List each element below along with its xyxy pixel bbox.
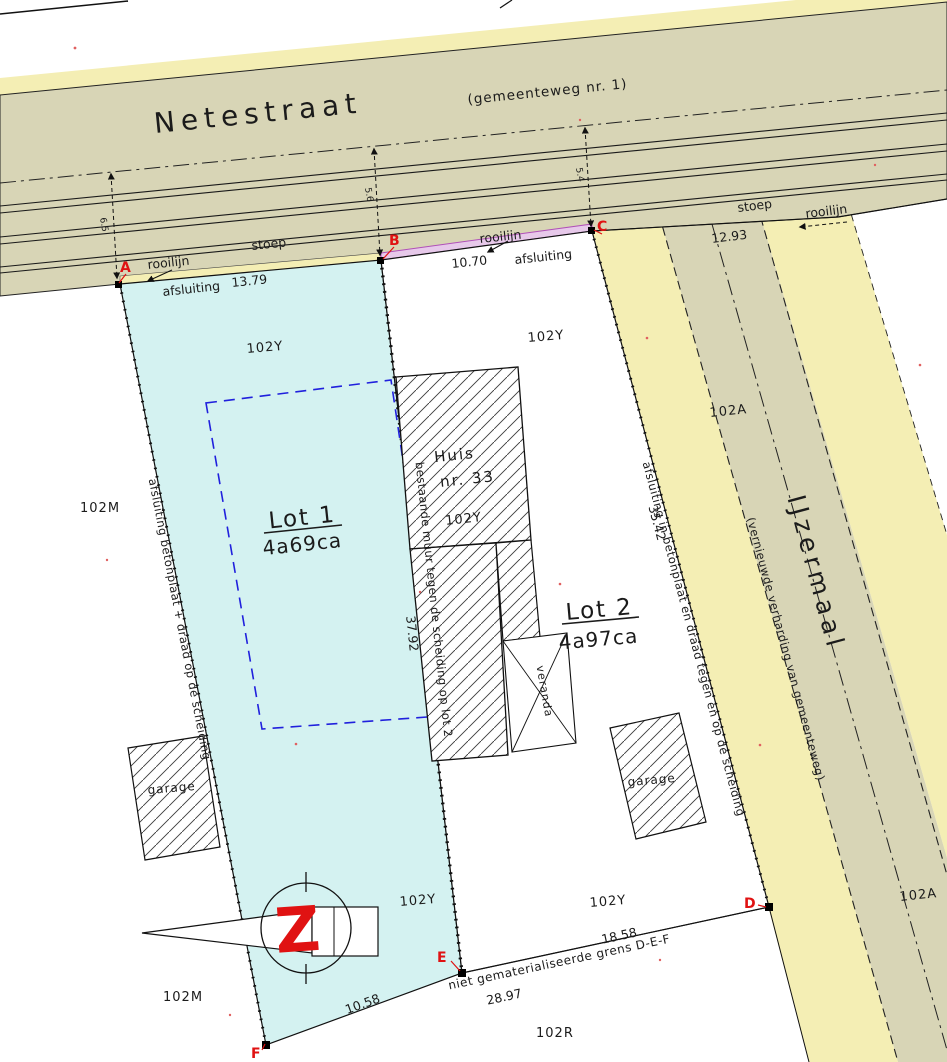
point-b-marker <box>377 257 384 264</box>
point-f-label: F <box>251 1046 261 1062</box>
parcel-102y-lot1-top: 102Y <box>246 339 284 357</box>
point-d-label: D <box>744 896 756 912</box>
cadastral-plan: A B C D E F Z Netestraat (gemeenteweg nr… <box>0 0 947 1062</box>
north-letter: Z <box>273 892 323 968</box>
point-b-label: B <box>389 233 400 249</box>
parcel-102y-lot2-top: 102Y <box>527 328 565 346</box>
north-arrow-tail <box>312 907 378 956</box>
parcel-102y-lot2-bottom: 102Y <box>589 893 627 911</box>
parcel-102y-lot1-bottom: 102Y <box>399 892 437 910</box>
parcel-102r: 102R <box>536 1026 574 1041</box>
dim-ed: 28.97 <box>485 986 523 1008</box>
point-d-marker <box>765 903 773 911</box>
top-corner-line <box>0 1 128 14</box>
point-a-label: A <box>120 260 131 276</box>
plan-canvas: A B C D E F Z Netestraat (gemeenteweg nr… <box>0 0 947 1062</box>
top-tick <box>500 0 512 8</box>
parcel-102m-bottom: 102M <box>163 990 203 1005</box>
parcel-102m-left: 102M <box>80 501 120 516</box>
point-c-label: C <box>597 219 607 235</box>
point-a-marker <box>115 281 122 288</box>
point-e-label: E <box>437 950 447 966</box>
